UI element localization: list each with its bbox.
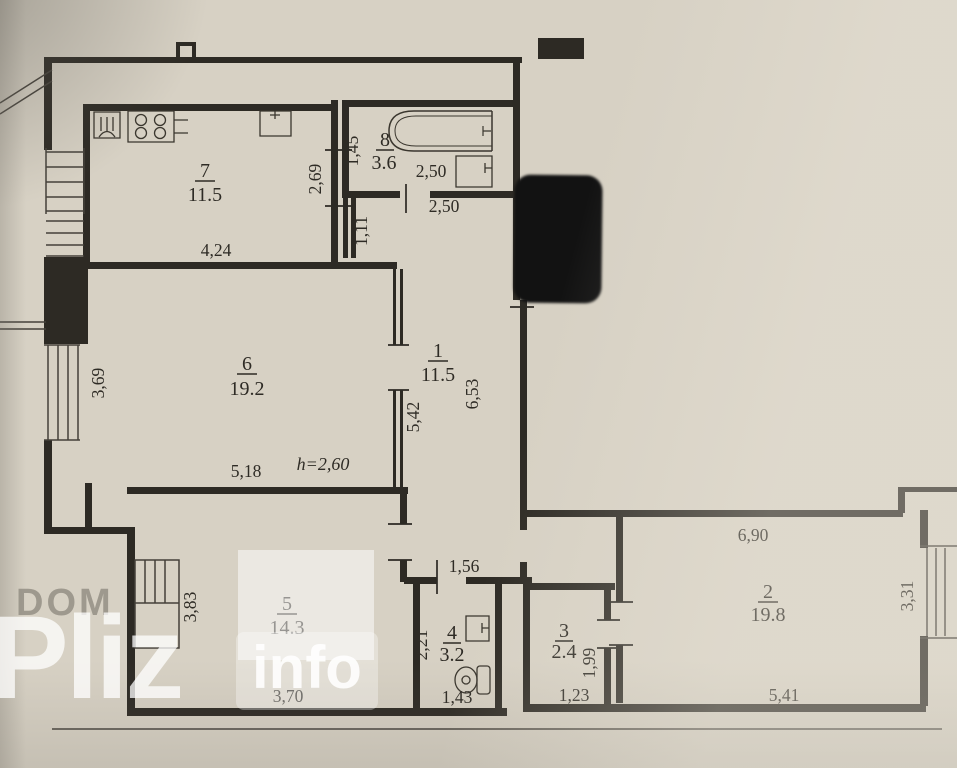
room-6-area: 19.2 — [230, 378, 265, 400]
room-6-number: 6 — [242, 353, 252, 375]
room-7-number: 7 — [200, 160, 210, 182]
room-4-number: 4 — [447, 622, 457, 644]
bathroom-sink-icon — [456, 156, 492, 187]
dim-room3-door: 1,99 — [579, 647, 599, 678]
dim-room2-top: 6,90 — [738, 525, 769, 545]
room-8-number: 8 — [380, 129, 390, 151]
dim-corridor-width: 1,11 — [351, 216, 371, 246]
room-4-area: 3.2 — [440, 644, 465, 666]
dim-room4-depth: 2,21 — [411, 630, 431, 661]
room-2-area: 19.8 — [751, 604, 786, 626]
dim-hall-door: 1,56 — [449, 556, 480, 576]
room-3-area: 2.4 — [552, 641, 577, 663]
room-1-area: 11.5 — [421, 364, 455, 386]
room-8-area: 3.6 — [372, 152, 397, 174]
dim-hall-length: 6,53 — [462, 378, 482, 409]
dim-room3-width: 1,23 — [559, 685, 590, 705]
stove-icon — [128, 111, 188, 142]
dim-room4-width: 1,43 — [442, 687, 473, 707]
room-1-number: 1 — [433, 340, 443, 362]
room-2-number: 2 — [763, 581, 773, 603]
dim-room2-width: 5,41 — [769, 685, 800, 705]
heater-icon — [94, 112, 120, 138]
dim-bath-depth: 1,45 — [342, 135, 362, 166]
watermark-brand: Pliz — [0, 599, 181, 717]
dim-bath-width-outer: 2,50 — [429, 196, 460, 216]
dim-ceiling-height: h=2,60 — [297, 454, 350, 474]
dim-room6-depth: 3,69 — [88, 367, 108, 398]
dim-kitchen-width: 4,24 — [201, 240, 232, 260]
wc-sink-icon — [466, 616, 489, 641]
room-7-area: 11.5 — [188, 184, 222, 206]
dim-kitchen-depth: 2,69 — [305, 163, 325, 194]
dim-hall-side: 5,42 — [403, 402, 423, 433]
dim-room6-width: 5,18 — [231, 461, 262, 481]
bathtub-icon — [389, 111, 492, 151]
floor-plan-page: 7 11.5 8 3.6 1 11.5 6 19.2 5 14.3 4 3.2 … — [0, 0, 957, 768]
kitchen-sink-icon — [260, 111, 291, 136]
dim-room5-depth: 3,83 — [180, 591, 200, 622]
redaction-mark — [513, 175, 602, 304]
dim-room2-depth: 3,31 — [897, 581, 917, 612]
room-3-number: 3 — [559, 620, 569, 642]
dim-bath-width-inner: 2,50 — [416, 161, 447, 181]
watermark-suffix: info — [236, 632, 378, 710]
